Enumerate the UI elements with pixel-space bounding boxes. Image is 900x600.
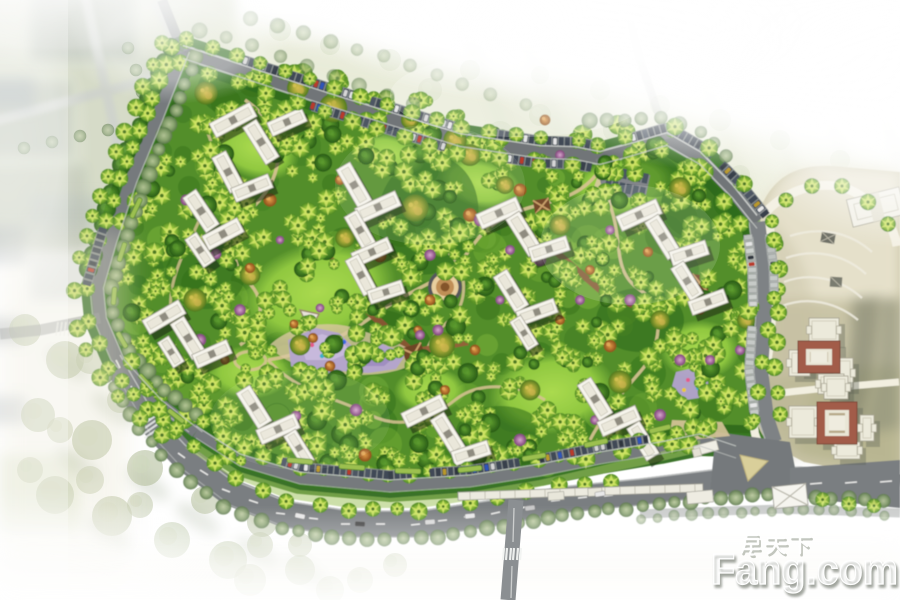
svg-text:Fang.com: Fang.com — [711, 545, 898, 594]
